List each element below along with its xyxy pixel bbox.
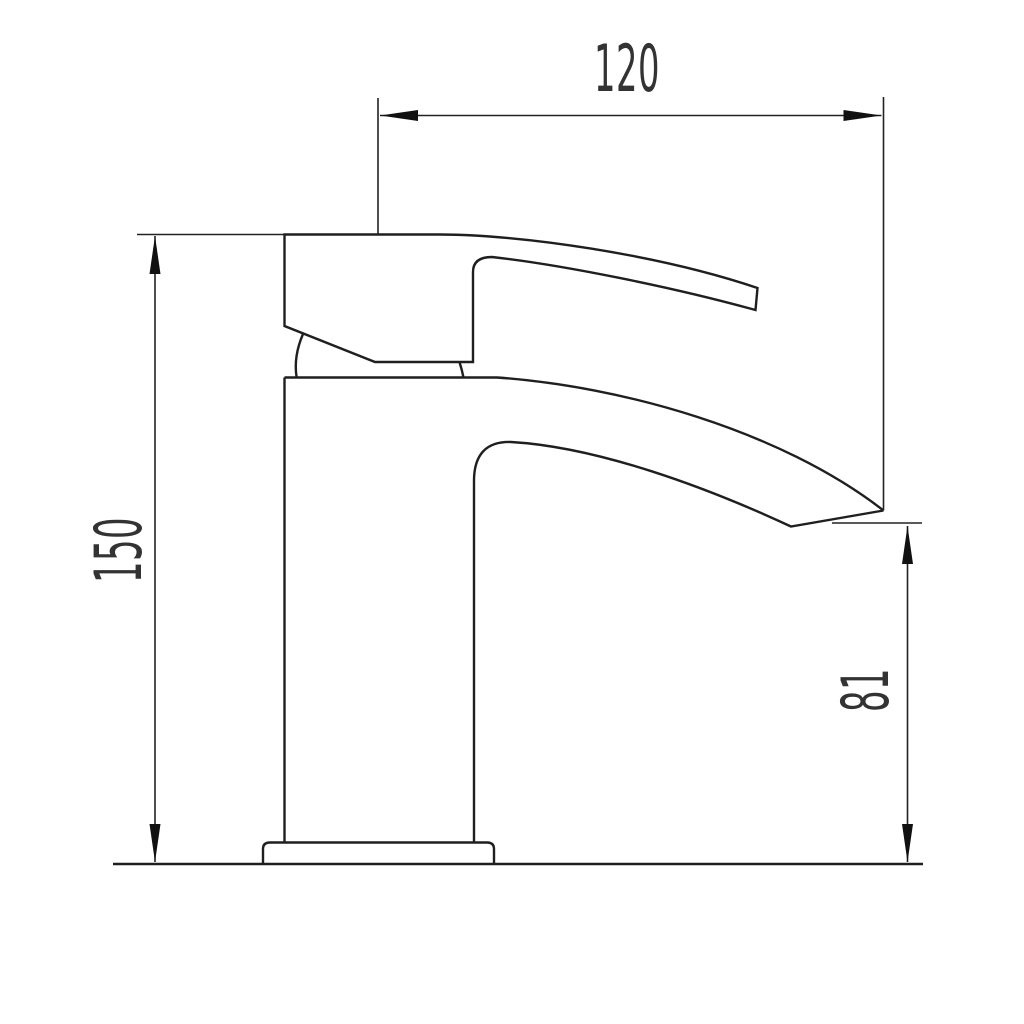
faucet-body-and-lever [285, 234, 758, 362]
dimension-label-width: 120 [594, 32, 660, 107]
arrowhead-down [902, 824, 913, 862]
technical-drawing-canvas: 120 150 81 [0, 0, 1024, 1024]
dimension-label-spout-height: 81 [829, 668, 904, 712]
arrowhead-left [380, 110, 418, 121]
arrowhead-up [150, 236, 161, 274]
arrowhead-right [844, 110, 882, 121]
arrowhead-up [902, 526, 913, 564]
technical-drawing-page: 120 150 81 [0, 0, 1024, 1024]
faucet-outline [113, 234, 923, 864]
base-plate [263, 843, 494, 865]
joint-arc-right [460, 362, 464, 378]
dimension-label-overall-height: 150 [82, 517, 157, 583]
dimension-width: 120 [378, 32, 884, 510]
dimension-spout-height: 81 [829, 523, 922, 862]
joint-arc-left [296, 334, 303, 377]
dimension-overall-height: 150 [82, 235, 284, 863]
arrowhead-down [150, 824, 161, 862]
spout-underside [474, 442, 884, 842]
spout-top-edge [285, 378, 884, 511]
